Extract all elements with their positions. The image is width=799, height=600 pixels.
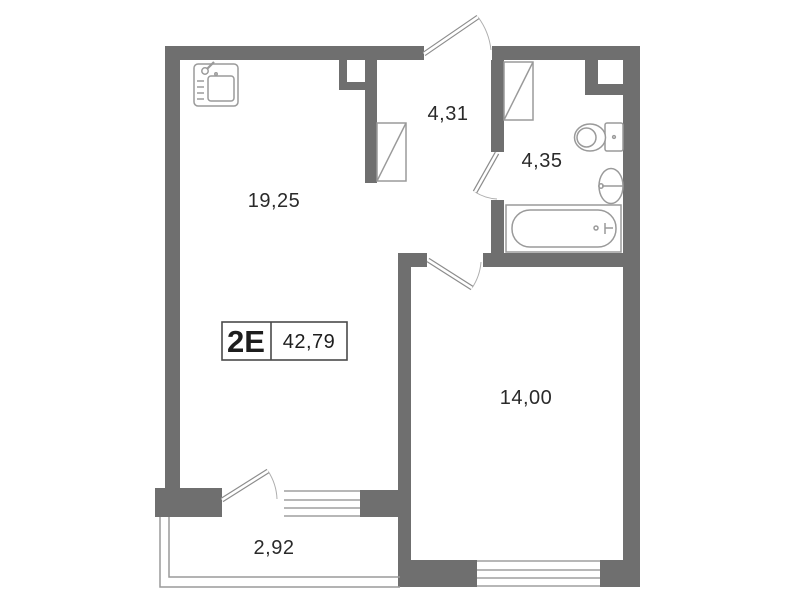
entrance-door (424, 17, 491, 54)
wall-segment (600, 560, 640, 587)
bathtub-icon (506, 205, 621, 252)
room-area-balcony: 2,92 (254, 537, 295, 559)
wall-segment (585, 84, 623, 95)
wardrobe-icon-hallway (377, 123, 406, 181)
wall-segment (492, 46, 640, 60)
wall-segment (623, 46, 640, 587)
walls (155, 46, 640, 587)
wall-segment (398, 253, 411, 587)
room-area-bathroom: 4,35 (522, 150, 563, 172)
room-area-bedroom: 14,00 (500, 387, 553, 409)
wall-segment (165, 46, 424, 60)
wall-segment (398, 560, 477, 587)
unit-total-area: 42,79 (283, 331, 336, 353)
floor-plan: 2E 42,79 19,25 4,31 4,35 14,00 2,92 (0, 0, 799, 600)
wall-segment (165, 46, 180, 490)
bathroom-door (475, 153, 497, 199)
kitchen-sink-icon (194, 62, 238, 106)
unit-info-box: 2E 42,79 (222, 322, 347, 360)
balcony-door (222, 471, 277, 500)
balcony-window (284, 491, 360, 516)
bedroom-window (477, 561, 600, 586)
room-area-hallway: 4,31 (428, 103, 469, 125)
room-area-living-room: 19,25 (248, 190, 301, 212)
toilet-icon (575, 123, 624, 151)
wall-segment (483, 253, 640, 267)
wall-segment (491, 200, 504, 253)
floor-plan-drawing: 2E 42,79 19,25 4,31 4,35 14,00 2,92 (0, 0, 799, 600)
wardrobe-icon-bathroom (504, 62, 533, 120)
wall-segment (491, 60, 504, 152)
wall-segment (155, 488, 222, 517)
washbasin-icon (599, 169, 623, 204)
unit-label: 2E (227, 324, 265, 359)
wall-segment (360, 490, 398, 517)
wall-segment (339, 82, 365, 90)
wall-segment (365, 60, 377, 183)
bedroom-door (428, 260, 481, 288)
